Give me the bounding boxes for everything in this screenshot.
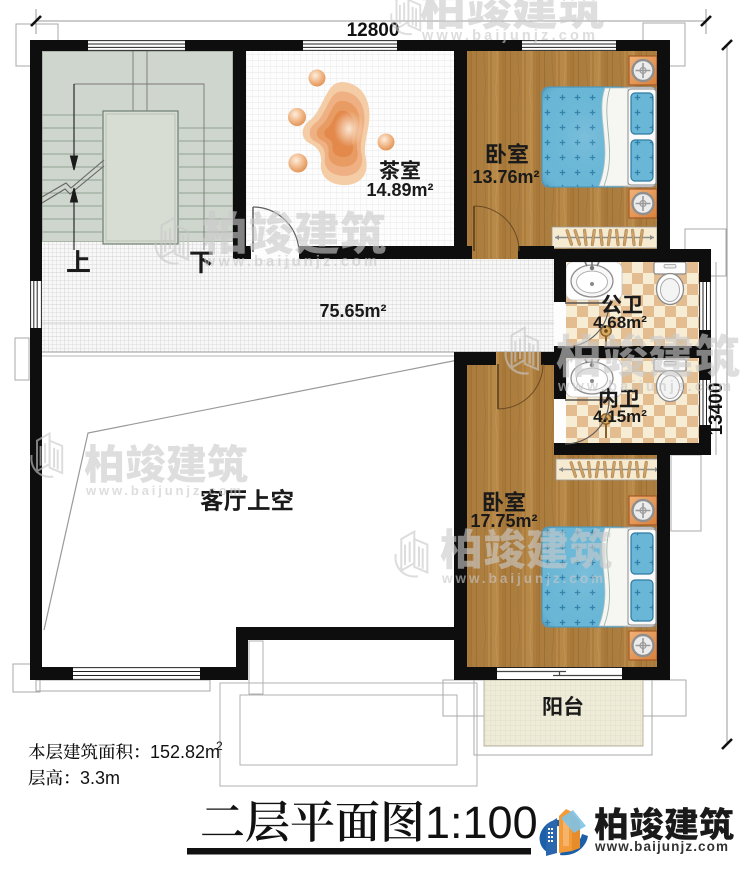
- svg-text:4.68m²: 4.68m²: [593, 313, 647, 332]
- svg-text:www.baijunjz.com: www.baijunjz.com: [441, 571, 606, 586]
- svg-text:www.baijunjz.com: www.baijunjz.com: [557, 379, 734, 395]
- svg-text:1:100: 1:100: [425, 797, 538, 848]
- svg-text:www.baijunjz.com: www.baijunjz.com: [85, 483, 244, 498]
- svg-text:17.75m²: 17.75m²: [470, 511, 537, 531]
- svg-text:14.89m²: 14.89m²: [366, 180, 433, 200]
- svg-text:www.baijunjz.com: www.baijunjz.com: [594, 839, 729, 854]
- svg-text:152.82m: 152.82m: [150, 742, 220, 762]
- svg-text:13.76m²: 13.76m²: [472, 167, 539, 187]
- svg-text:75.65m²: 75.65m²: [319, 301, 386, 321]
- svg-text:www.baijunjz.com: www.baijunjz.com: [421, 28, 598, 44]
- svg-text:3.3m: 3.3m: [80, 768, 120, 788]
- svg-text:4.15m²: 4.15m²: [593, 407, 647, 426]
- svg-text:www.baijunjz.com: www.baijunjz.com: [203, 254, 380, 270]
- svg-text:2: 2: [216, 739, 223, 753]
